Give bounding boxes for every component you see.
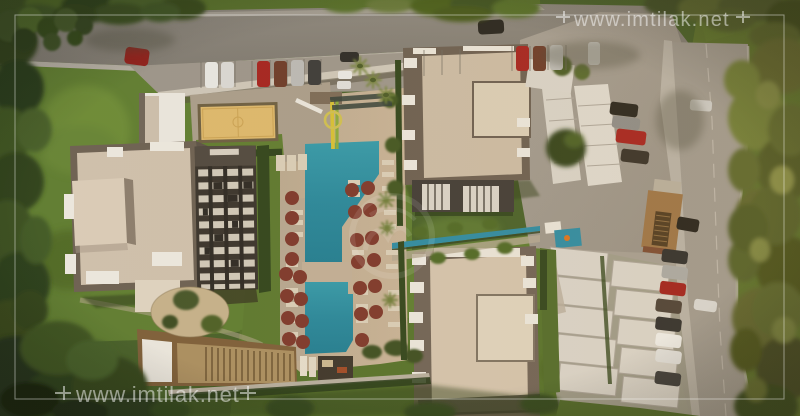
- svg-text:www.imtilak.net: www.imtilak.net: [75, 382, 240, 407]
- svg-text:www.imtilak.net: www.imtilak.net: [573, 9, 730, 31]
